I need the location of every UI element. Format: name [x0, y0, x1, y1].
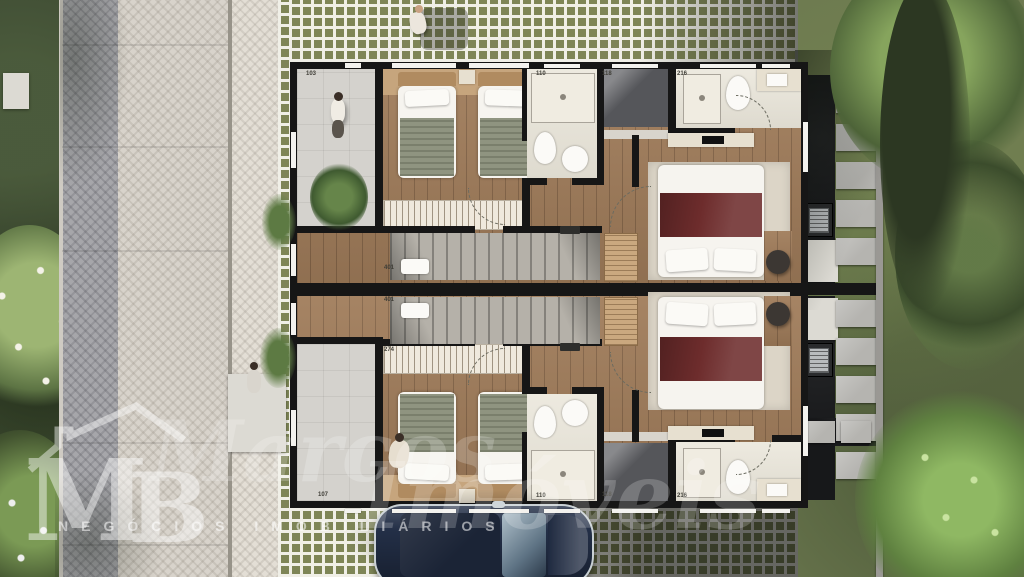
floorplan-render: 103110118216401401274107110118216 M B Ma…	[0, 0, 1024, 577]
watermark: M B Marcos Imóveis NEGÓCIOS IMOBILIÁRIOS	[0, 0, 1024, 577]
watermark-tagline: NEGÓCIOS IMOBILIÁRIOS	[58, 518, 508, 534]
